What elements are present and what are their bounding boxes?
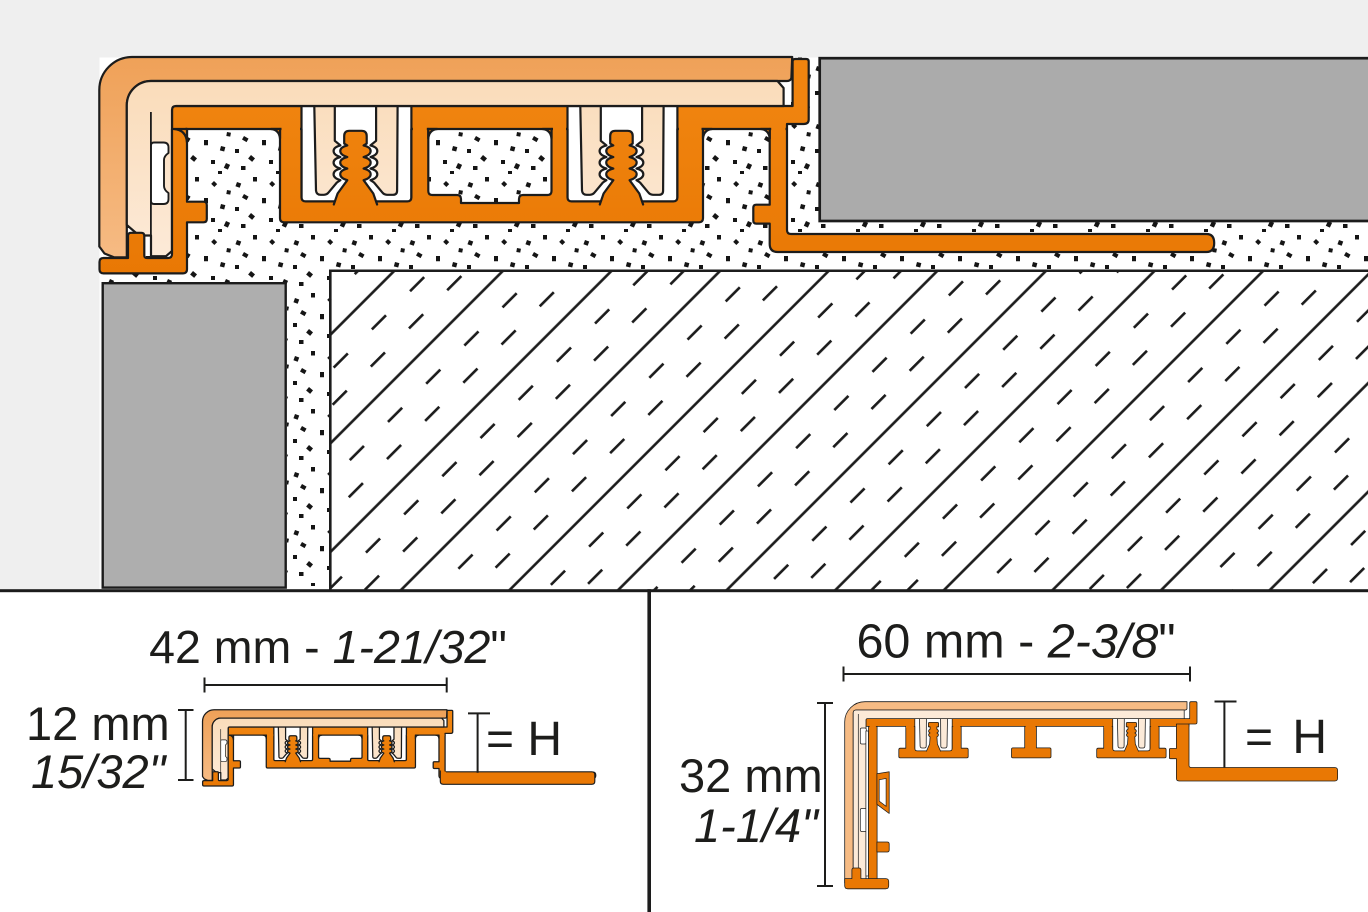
svg-text:32 mm: 32 mm <box>679 749 823 802</box>
svg-text:= H: = H <box>1245 711 1327 764</box>
svg-text:42 mm - 1-21/32": 42 mm - 1-21/32" <box>149 621 507 673</box>
svg-text:= H: = H <box>486 713 562 766</box>
svg-text:12 mm: 12 mm <box>26 697 170 750</box>
svg-text:15/32": 15/32" <box>31 745 168 798</box>
svg-text:1-1/4": 1-1/4" <box>694 799 820 852</box>
svg-text:60 mm - 2-3/8": 60 mm - 2-3/8" <box>856 615 1175 669</box>
